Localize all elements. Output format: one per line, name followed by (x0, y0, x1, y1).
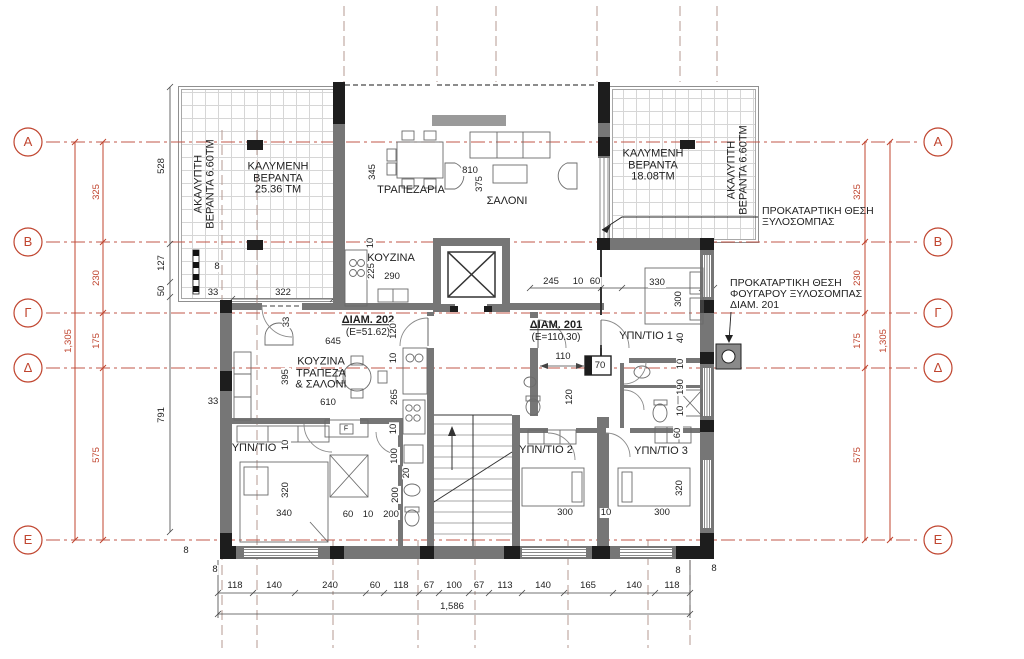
room-living: ΣΑΛΟΝΙ (487, 196, 528, 208)
chain-seg: 67 (473, 581, 486, 591)
chain-seg: 165 (579, 581, 597, 591)
grid-label-g-left: Γ (24, 306, 31, 320)
chain-total: 1,586 (439, 602, 465, 612)
grid-label-a-right: Α (934, 135, 943, 149)
chain-seg: 100 (445, 581, 463, 591)
plan-dim: 320 (675, 479, 685, 497)
apt201-title: ΔΙΑΜ. 201 (530, 320, 583, 332)
plan-dim: 610 (319, 398, 337, 408)
fixture-f-label: F (344, 425, 348, 432)
wall-thickness-8: 8 (211, 565, 218, 575)
dim-row-ab-right: 325 (853, 183, 863, 201)
annotation-stove: ΠΡΟΚΑΤΑΡΤΙΚΗ ΘΕΣΗ ΞΥΛΟΣΟΜΠΑΣ (762, 206, 874, 228)
plan-dim: 100 (390, 447, 400, 465)
plan-dim: 10 (362, 510, 375, 520)
chain-seg: 240 (321, 581, 339, 591)
grid-label-a-left: Α (24, 135, 33, 149)
room-veranda-left-open: ΑΚΑΛΥΠΤΗ ΒΕΡΑΝΤΑ 6.60ΤΜ (193, 139, 216, 228)
plan-dim: 33 (207, 397, 220, 407)
plan-dim: 245 (542, 277, 560, 287)
dim-127: 127 (157, 254, 167, 272)
chain-seg: 140 (534, 581, 552, 591)
grid-label-b-left: Β (24, 235, 33, 249)
room-veranda-right-covered: ΚΑΛΥΜΕΝΗ ΒΕΡΑΝΤΑ 18.08ΤΜ (623, 149, 684, 184)
floorplan-drawing (0, 0, 1024, 659)
dim-row-bg-left: 230 (92, 269, 102, 287)
plan-dim: 265 (390, 388, 400, 406)
chain-seg: 118 (663, 581, 680, 591)
dim-50: 50 (157, 285, 167, 298)
plan-dim: 225 (367, 262, 377, 280)
plan-dim: 330 (648, 278, 666, 288)
plan-dim: 300 (674, 290, 684, 308)
chain-seg: 60 (369, 581, 382, 591)
apt202-title: ΔΙΑΜ. 202 (342, 315, 395, 327)
plan-dim: 10 (281, 439, 291, 452)
wall-thickness-8: 8 (710, 564, 717, 574)
wall-thickness-8: 8 (674, 566, 681, 576)
plan-dim: 60 (673, 427, 683, 440)
chain-seg: 118 (392, 581, 409, 591)
plan-dim: 10 (676, 405, 686, 418)
plan-dim: 10 (366, 237, 376, 250)
grid-label-d-right: Δ (934, 361, 943, 375)
plan-dim: 300 (653, 508, 671, 518)
plan-dim: 340 (275, 509, 293, 519)
dim-total-right: 1,305 (879, 328, 889, 354)
plan-dim: 345 (368, 163, 378, 181)
grid-label-d-left: Δ (24, 361, 33, 375)
plan-dim: 33 (207, 288, 220, 298)
plan-dim: 33 (282, 316, 292, 329)
plan-dim: 320 (281, 481, 291, 499)
plan-dim: 200 (382, 510, 400, 520)
dim-791: 791 (157, 406, 167, 424)
plan-dim: 20 (402, 467, 412, 480)
plan-dim: 120 (565, 388, 575, 406)
dim-row-gd-left: 175 (92, 332, 102, 350)
grid-label-b-right: Β (934, 235, 943, 249)
room-dining: ΤΡΑΠΕΖΑΡΙΑ (377, 185, 445, 197)
plan-dim: 200 (391, 486, 401, 504)
grid-label-g-right: Γ (934, 306, 941, 320)
floor-plan-canvas: Α Β Γ Δ Ε Α Β Γ Δ Ε 325 230 175 575 1,30… (0, 0, 1024, 659)
plan-dim: 10 (389, 423, 399, 436)
annotation-chimney: ΠΡΟΚΑΤΑΡΤΙΚΗ ΘΕΣΗ ΦΟΥΓΑΡΟΥ ΞΥΛΟΣΟΜΠΑΣ ΔΙ… (730, 278, 862, 311)
plan-dim: 190 (676, 378, 686, 396)
plan-dim: 10 (572, 277, 585, 287)
plan-dim: 40 (676, 332, 686, 345)
plan-dim: 110 (554, 352, 571, 362)
plan-dim: 10 (600, 508, 613, 518)
plan-dim-shaft70: 70 (594, 361, 607, 371)
plan-dim: 322 (274, 288, 292, 298)
plan-dim: 8 (213, 262, 220, 272)
wall-thickness-8: 8 (182, 546, 189, 556)
plan-dim: 60 (342, 510, 355, 520)
chain-seg: 118 (226, 581, 243, 591)
plan-dim: 395 (281, 368, 291, 386)
dim-row-de-left: 575 (92, 446, 102, 464)
plan-dim: 645 (324, 337, 342, 347)
dim-528: 528 (157, 157, 167, 175)
plan-dim: 10 (389, 352, 399, 365)
room-veranda-left-covered: ΚΑΛΥΜΕΝΗ ΒΕΡΑΝΤΑ 25.36 ΤΜ (248, 162, 309, 197)
plan-dim: 120 (389, 322, 399, 340)
chain-seg: 113 (496, 581, 513, 591)
apt202-area: (E=51.62) (346, 328, 390, 339)
room-veranda-right-open: ΑΚΑΛΥΠΤΗ ΒΕΡΑΝΤΑ 6.60ΤΜ (726, 125, 749, 214)
chain-seg: 140 (265, 581, 283, 591)
dim-total-left: 1,305 (64, 328, 74, 354)
grid-label-e-right: Ε (934, 533, 943, 547)
plan-dim: 290 (383, 272, 401, 282)
chain-seg: 140 (625, 581, 643, 591)
plan-dim: 60 (589, 277, 602, 287)
dim-row-de-right: 575 (853, 446, 863, 464)
plan-dim: 375 (475, 175, 485, 193)
chain-seg: 67 (423, 581, 436, 591)
room-apt202-living: ΚΟΥΖΙΝΑ ΤΡΑΠΕΖΑ & ΣΑΛΟΝΙ (295, 357, 346, 392)
dim-row-ab-left: 325 (92, 183, 102, 201)
room-bedroom1: ΥΠΝ/ΤΙΟ 1 (619, 331, 673, 343)
room-bedroom2: ΥΠΝ/ΤΙΟ 2 (519, 445, 573, 457)
room-bedroom-left: ΥΠΝ/ΤΙΟ (232, 443, 277, 455)
dim-row-gd-right: 175 (853, 332, 863, 350)
plan-dim: 300 (556, 508, 574, 518)
grid-label-e-left: Ε (24, 533, 33, 547)
plan-dim: 10 (676, 358, 686, 371)
room-bedroom3: ΥΠΝ/ΤΙΟ 3 (634, 446, 688, 458)
apt201-area: (E=110.30) (531, 333, 580, 344)
